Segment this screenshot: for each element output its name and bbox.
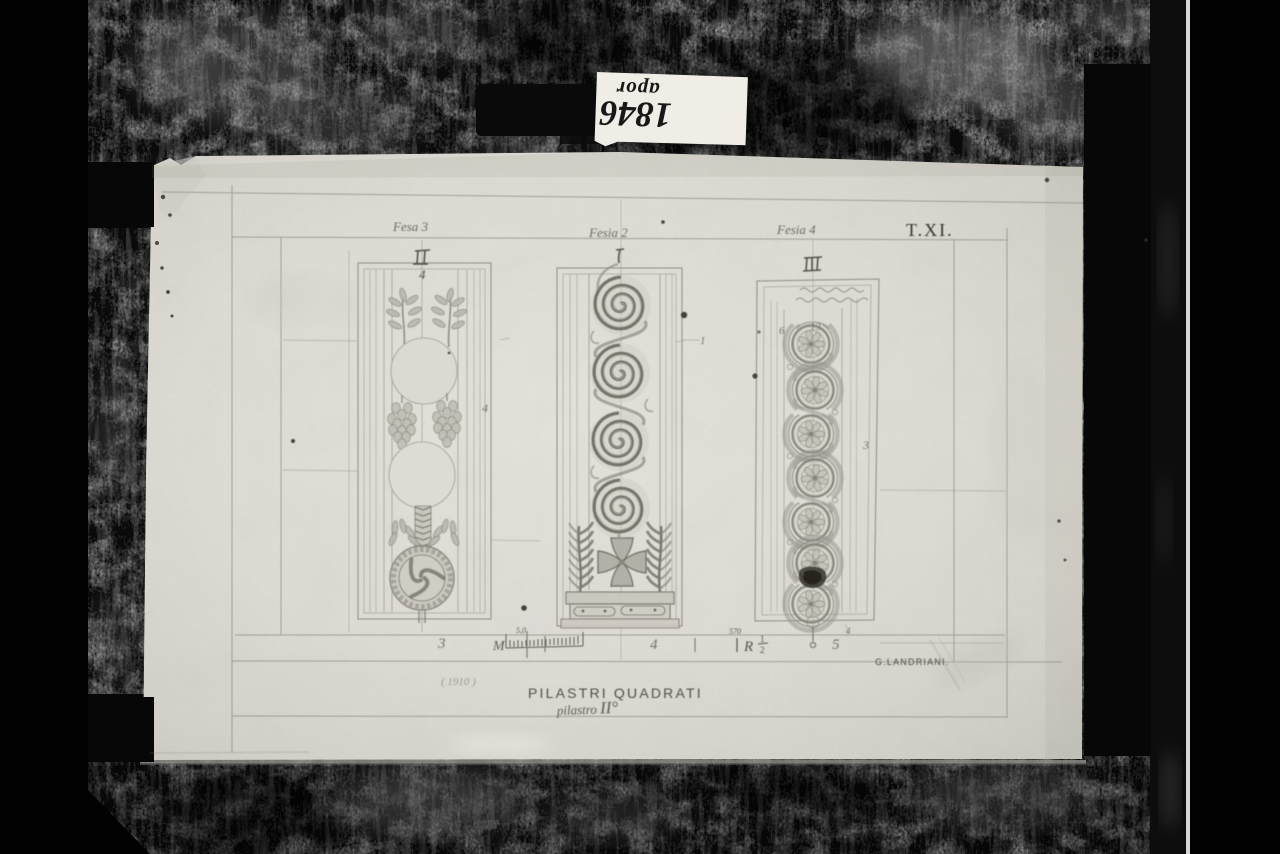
svg-text:3: 3 bbox=[862, 438, 869, 452]
svg-text:5,0: 5,0 bbox=[516, 626, 526, 635]
svg-text:570: 570 bbox=[729, 627, 741, 636]
svg-text:M: M bbox=[492, 639, 506, 654]
svg-text:1: 1 bbox=[760, 634, 765, 644]
svg-text:5: 5 bbox=[832, 637, 840, 653]
svg-text:13: 13 bbox=[810, 321, 822, 333]
svg-text:3: 3 bbox=[437, 636, 446, 652]
svg-text:4: 4 bbox=[846, 626, 851, 636]
svg-text:Fesia 2: Fesia 2 bbox=[588, 225, 628, 240]
svg-text:T.XI.: T.XI. bbox=[906, 220, 954, 240]
svg-text:R: R bbox=[743, 639, 753, 655]
svg-text:Fesia 4: Fesia 4 bbox=[776, 222, 816, 237]
svg-text:Fesa 3: Fesa 3 bbox=[392, 219, 429, 234]
svg-text:4: 4 bbox=[419, 267, 426, 282]
svg-text:6: 6 bbox=[779, 325, 785, 337]
svg-text:( 1910 ): ( 1910 ) bbox=[441, 676, 476, 688]
svg-text:apor: apor bbox=[615, 77, 659, 103]
svg-text:4: 4 bbox=[482, 401, 488, 415]
svg-text:1: 1 bbox=[700, 335, 706, 347]
svg-text:4: 4 bbox=[650, 637, 658, 653]
svg-text:2: 2 bbox=[760, 645, 765, 655]
svg-text:G.LANDRIANI.: G.LANDRIANI. bbox=[875, 657, 949, 667]
